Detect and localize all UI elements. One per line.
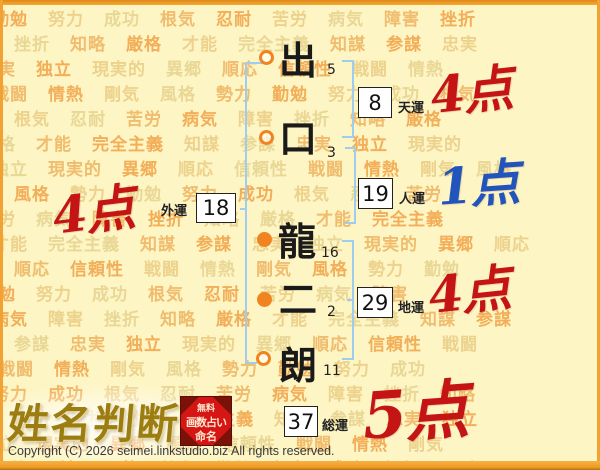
gaiun-label: 外運 [161,200,187,219]
seal-line: 無料 [181,401,231,414]
chiun-score: 4点 [424,248,512,328]
frame-left-border [0,0,3,470]
gaiun-bracket-bottom-tick [245,362,257,364]
gaiun-value-box: 18 [196,193,236,223]
surname-marker-icon [259,50,274,65]
given-name-marker-icon [257,232,272,247]
tenun-score: 4点 [426,48,514,128]
frame-top-border [0,0,600,5]
tenun-value-box: 8 [358,87,392,118]
name-character: 二 [279,281,317,319]
given-name-marker-icon [257,292,272,307]
tenun-bracket-bottom-tick [342,136,354,138]
tenun-bracket [352,60,354,138]
chiun-value-box: 29 [357,287,393,318]
tenun-bracket-top-tick [342,60,354,62]
seal-line: 命名 [181,428,231,444]
name-character: 口 [279,120,317,158]
gaiun-bracket-connector [240,208,245,210]
jinun-score: 1点 [435,142,521,219]
stroke-count: 5 [327,62,336,78]
souun-value-box: 37 [284,406,318,437]
name-character: 龍 [278,223,316,261]
stroke-count: 11 [323,363,341,379]
gaiun-score: 4点 [48,167,137,248]
copyright-text: Copyright (C) 2026 seimei.linkstudio.biz… [8,444,335,458]
stroke-count: 2 [327,304,336,320]
frame-bottom-border [0,461,600,470]
jinun-label: 人運 [399,188,425,207]
surname-marker-icon [259,130,274,145]
jinun-bracket [354,147,356,224]
given-name-marker-icon [256,351,271,366]
souun-label: 総運 [322,415,348,434]
name-character: 朗 [279,347,317,385]
jinun-value-box: 19 [358,178,393,209]
gaiun-bracket [245,62,247,364]
chiun-bracket-top-tick [342,240,354,242]
stroke-count: 16 [321,245,339,261]
chiun-label: 地運 [398,297,424,316]
chiun-bracket-connector [347,299,353,301]
stroke-count: 3 [327,145,336,161]
site-logo[interactable]: 姓名判断 [5,390,182,450]
seimei-result-page: 勤勉努力成功根気忍耐苦労病気障害挫折障害挫折知略厳格才能完全主義知謀参謀忠実参謀… [0,0,600,470]
jinun-bracket-top-tick [345,147,356,149]
chiun-bracket-bottom-tick [342,358,354,360]
souun-score: 5点 [359,358,470,457]
free-naming-seal[interactable]: 無料 画数占い 命名 [180,396,232,446]
jinun-bracket-bottom-tick [345,222,356,224]
tenun-label: 天運 [398,97,424,116]
name-character: 出 [279,42,317,80]
